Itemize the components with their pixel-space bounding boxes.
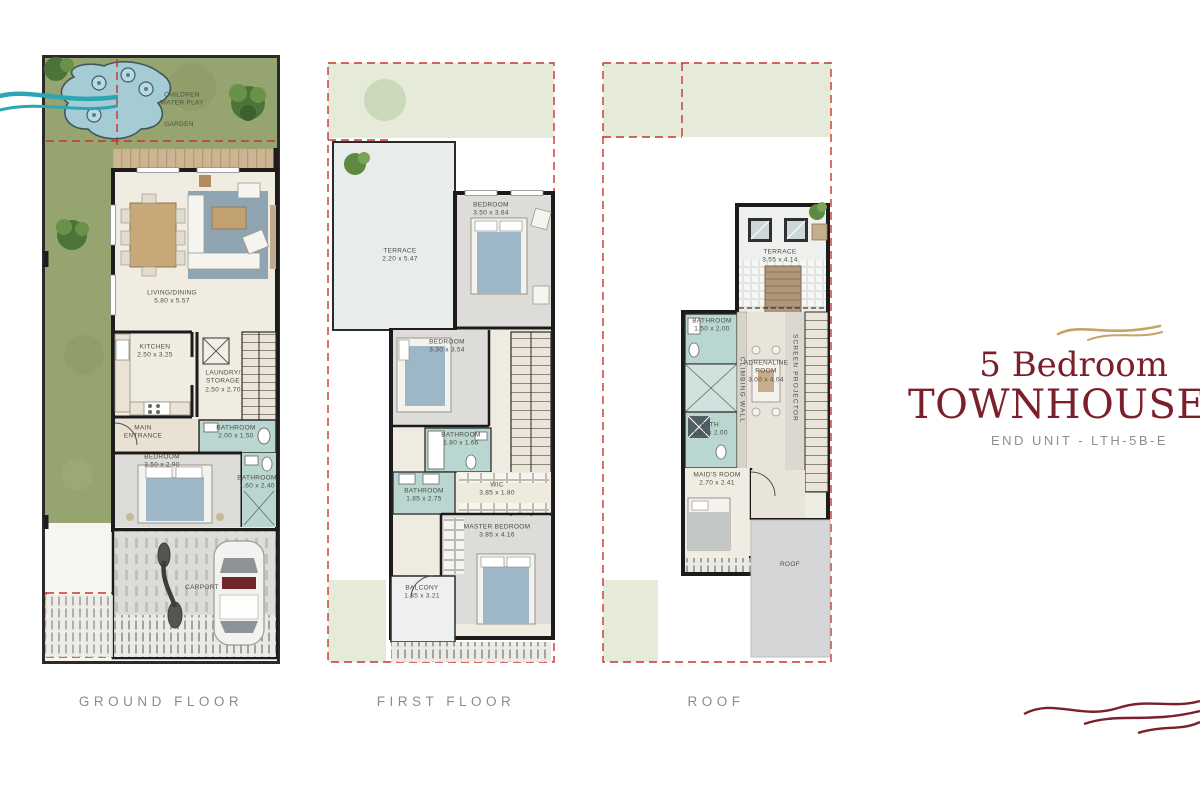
room-label-bathroom-2: BATHROOM1.85 x 2.75	[404, 488, 443, 505]
bed-icon	[126, 465, 224, 523]
brand-title-line2: TOWNHOUSE	[908, 384, 1168, 426]
room-label-bedroom: BEDROOM3.50 x 2.90	[144, 454, 180, 471]
room-label-main-entrance: MAIN ENTRANCE	[120, 425, 166, 442]
room-label-balcony: BALCONY1.85 x 3.21	[404, 585, 439, 602]
floorplan-sheet: { "brand": { "title_line1": "5 Bedroom",…	[0, 0, 1200, 800]
brand-subtitle: END UNIT - LTH-5B-E	[908, 433, 1168, 448]
car-icon	[214, 541, 264, 645]
room-label-carport: CARPORT	[185, 584, 219, 592]
maroon-waves-icon	[1022, 692, 1200, 740]
bed-icon	[688, 498, 730, 550]
stairs	[805, 312, 828, 492]
room-label-bathroom: BATHROOM1.50 x 2.00	[692, 318, 731, 335]
wood-deck	[113, 149, 277, 170]
room-label-adrenaline-room: ADRENALINE ROOM3.00 x 4.04	[743, 359, 789, 384]
room-label-bedroom-2: BEDROOM3.30 x 3.54	[429, 339, 465, 356]
roof-hatch	[685, 558, 751, 572]
room-label-bath: BATH1.50 x 2.00	[692, 422, 727, 439]
roof-plan	[600, 60, 838, 668]
brand-block: 5 Bedroom TOWNHOUSE END UNIT - LTH-5B-E	[908, 318, 1168, 448]
wardrobe-icon	[444, 518, 464, 574]
room-label-screen-projector: SCREEN PROJECTOR	[792, 334, 799, 422]
dining-table-icon	[121, 194, 185, 276]
room-label-living-dining: LIVING/DINING5.80 x 5.57	[147, 290, 197, 307]
caption-ground-floor: GROUND FLOOR	[79, 694, 243, 709]
bath-fixtures	[685, 412, 737, 468]
teal-waves-icon	[0, 86, 118, 120]
room-label-roof: ROOF	[780, 561, 800, 569]
bed-icon	[471, 218, 527, 294]
caption-first-floor: FIRST FLOOR	[377, 694, 516, 709]
room-label-water-play: CHILDREN WATER PLAY	[154, 92, 210, 109]
room-label-bathroom-2: BATHROOM1.60 x 2.40	[237, 475, 276, 492]
skylight-icon	[748, 218, 772, 242]
room-label-bathroom-1: BATHROOM1.80 x 1.66	[441, 432, 480, 449]
room-label-garden: GARDEN	[164, 121, 194, 129]
roof-panel: TERRACE3.55 x 4.14 BATHROOM1.50 x 2.00 C…	[600, 60, 838, 668]
ground-floor-panel: CHILDREN WATER PLAY GARDEN LIVING/DINING…	[42, 55, 280, 667]
ground-floor-plan	[42, 55, 280, 667]
room-label-terrace: TERRACE2.20 x 5.47	[382, 248, 417, 265]
first-floor-plan	[325, 60, 557, 668]
room-label-maids-room: MAID'S ROOM2.70 x 2.41	[693, 472, 740, 489]
room-label-bedroom-1: BEDROOM3.50 x 3.64	[473, 202, 509, 219]
room-label-terrace: TERRACE3.55 x 4.14	[762, 249, 797, 266]
room-label-master-bedroom: MASTER BEDROOM3.85 x 4.16	[464, 524, 531, 541]
bed-icon	[477, 554, 535, 624]
room-label-wic: WIC3.85 x 1.80	[479, 482, 514, 499]
roof-hatch	[391, 642, 551, 662]
room-label-kitchen: KITCHEN2.50 x 3.25	[137, 344, 172, 361]
caption-roof: ROOF	[688, 694, 745, 709]
room-label-laundry: LAUNDRY/ STORAGE2.50 x 2.70	[199, 369, 247, 394]
tree-icon	[364, 79, 406, 121]
stairs	[242, 332, 276, 424]
hall-area	[751, 470, 805, 518]
first-terrace	[333, 142, 455, 330]
room-label-bathroom-1: BATHROOM2.00 x 1.50	[216, 425, 255, 442]
brand-title-line1: 5 Bedroom	[908, 348, 1168, 384]
roof-area	[751, 520, 830, 657]
first-floor-panel: TERRACE2.20 x 5.47 BEDROOM3.50 x 3.64 BE…	[325, 60, 557, 668]
skylight-icon	[784, 218, 808, 242]
adrenaline-room	[747, 312, 785, 480]
gold-wave-icon	[1054, 318, 1164, 344]
